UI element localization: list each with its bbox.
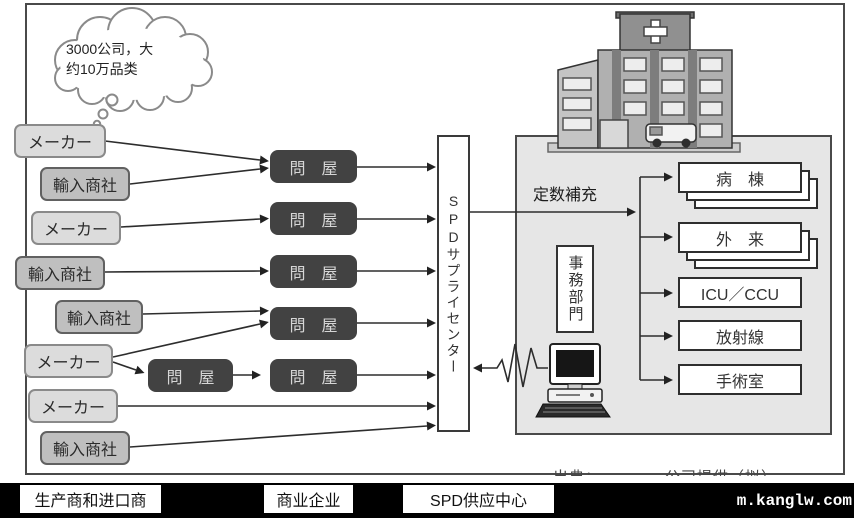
dept-box-icu-ccu: ICU／CCU xyxy=(678,277,802,308)
wholesaler-box-1: 問 屋 xyxy=(270,150,357,183)
supplier-box-maker-1: メーカー xyxy=(14,124,106,158)
cloud-annotation: 3000公司，大 约10万品类 xyxy=(66,40,196,79)
replenish-label: 定数補充 xyxy=(533,181,597,205)
supplier-box-importer-1: 輸入商社 xyxy=(40,167,130,201)
spd-supply-center-label: SPDサプライセンター xyxy=(444,193,464,375)
wholesaler-box-3: 問 屋 xyxy=(270,255,357,288)
legend-commercial-enterprises: 商业企业 xyxy=(264,485,353,513)
dept-box-radiology: 放射線 xyxy=(678,320,802,351)
diagram-canvas: 3000公司，大 约10万品类 メーカー 輸入商社 メーカー 輸入商社 輸入商社… xyxy=(0,0,854,518)
supplier-box-importer-3: 輸入商社 xyxy=(55,300,143,334)
supplier-box-maker-4: メーカー xyxy=(28,389,118,423)
wholesaler-box-5: 問 屋 xyxy=(270,359,357,392)
watermark-text: m.kanglw.com xyxy=(737,492,852,510)
dept-box-ward: 病 棟 xyxy=(678,162,802,193)
spd-supply-center-bar: SPDサプライセンター xyxy=(437,135,470,432)
wholesaler-box-secondary: 問 屋 xyxy=(148,359,233,392)
supplier-box-importer-4: 輸入商社 xyxy=(40,431,130,465)
admin-dept-label: 事務部門 xyxy=(565,255,586,323)
legend-spd-supply-center: SPD供应中心 xyxy=(403,485,554,513)
source-caption-partial: 出典：…………公司提供（拟） xyxy=(553,466,835,476)
supplier-box-maker-2: メーカー xyxy=(31,211,121,245)
wholesaler-box-2: 問 屋 xyxy=(270,202,357,235)
dept-box-outpatient: 外 来 xyxy=(678,222,802,253)
bottom-legend-bar: 生产商和进口商 商业企业 SPD供应中心 m.kanglw.com xyxy=(0,483,854,518)
cloud-line1: 3000公司，大 xyxy=(66,40,196,60)
supplier-box-importer-2: 輸入商社 xyxy=(15,256,105,290)
admin-dept-box: 事務部門 xyxy=(556,245,594,333)
cloud-line2: 约10万品类 xyxy=(66,60,196,80)
wholesaler-box-4: 問 屋 xyxy=(270,307,357,340)
legend-producers-importers: 生产商和进口商 xyxy=(20,485,161,513)
supplier-box-maker-3: メーカー xyxy=(24,344,113,378)
dept-box-operating-room: 手術室 xyxy=(678,364,802,395)
